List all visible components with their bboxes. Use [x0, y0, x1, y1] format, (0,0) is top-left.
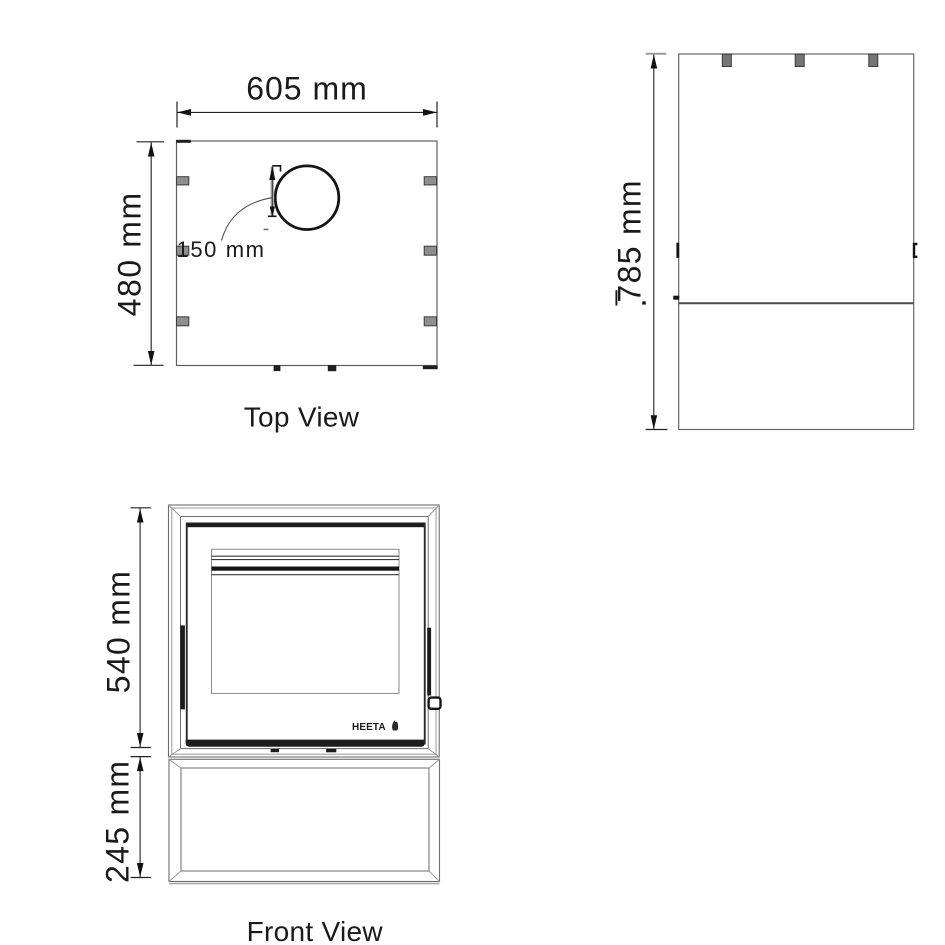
svg-text:HEETA: HEETA	[352, 722, 386, 733]
svg-text:Front View: Front View	[247, 916, 384, 945]
svg-text:785 mm: 785 mm	[612, 179, 648, 302]
svg-text:480 mm: 480 mm	[112, 191, 148, 316]
svg-text:150 mm: 150 mm	[177, 237, 266, 262]
svg-text:Top View: Top View	[244, 402, 360, 433]
svg-text:245 mm: 245 mm	[100, 760, 136, 883]
svg-text:540 mm: 540 mm	[101, 570, 137, 693]
svg-text:605 mm: 605 mm	[246, 71, 368, 107]
